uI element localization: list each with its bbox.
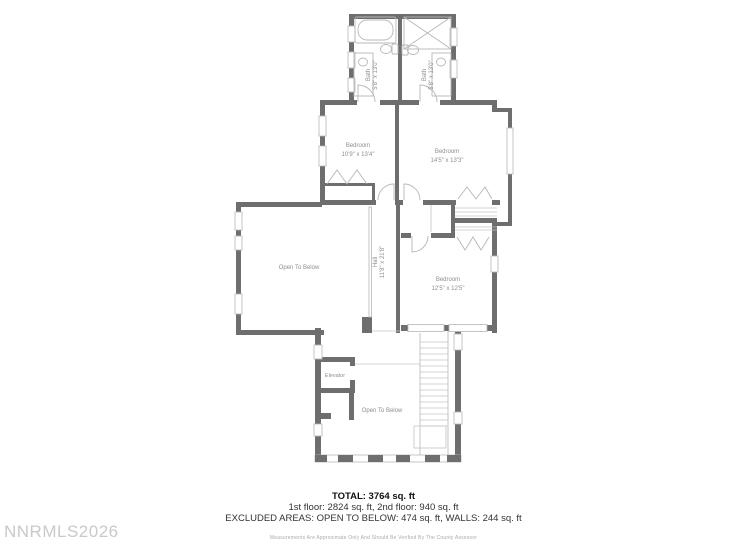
bath-right-name: Bath [422,69,428,81]
hall-dims: 11'8" x 21'8" [380,246,386,278]
staircase [414,331,448,455]
shower [404,17,451,49]
floor-areas: 1st floor: 2824 sq. ft, 2nd floor: 940 s… [0,502,747,513]
hall-name: Hall [373,257,379,267]
fixtures [354,17,451,96]
toilet-left [381,44,399,54]
bedroom-lower-name: Bedroom [436,277,460,283]
bedroom-right-dims: 14'5" x 13'3" [431,158,464,164]
elevator-label: Elevator [325,373,345,379]
stair-landing [414,426,446,448]
door-bedroom-left [378,184,394,200]
bedroom-lower-dims: 12'5" x 12'5" [432,286,465,292]
bifold-closet-bedroom-left [327,170,367,184]
watermark: NNRMLS2026 [4,522,119,542]
bath-right-dims: 5'8" x 13'0" [429,60,435,90]
bedroom-left-dims: 10'9" x 13'4" [342,152,375,158]
open-to-below-upper-label: Open To Below [279,265,320,271]
total-area: TOTAL: 3764 sq. ft [0,491,747,502]
bedroom-right-name: Bedroom [435,149,459,155]
toilet-right [402,45,419,55]
door-bedroom-right [404,184,420,200]
floor-plan: Bath 5'8" x 13'0" Bath 5'8" x 13'0" Bedr… [0,0,747,560]
bath-left-dims: 5'8" x 13'0" [373,60,379,90]
bath-left-name: Bath [366,69,372,81]
bathtub [355,17,396,43]
bifold-closet-bedroom-right [458,187,492,199]
bedroom-left-name: Bedroom [346,143,370,149]
railings-and-shelves [355,205,497,364]
open-to-below-lower-label: Open To Below [362,408,403,414]
railing [369,207,372,317]
bottom-wall-windows [315,455,461,462]
floor-plan-page: Bath 5'8" x 13'0" Bath 5'8" x 13'0" Bedr… [0,0,747,560]
